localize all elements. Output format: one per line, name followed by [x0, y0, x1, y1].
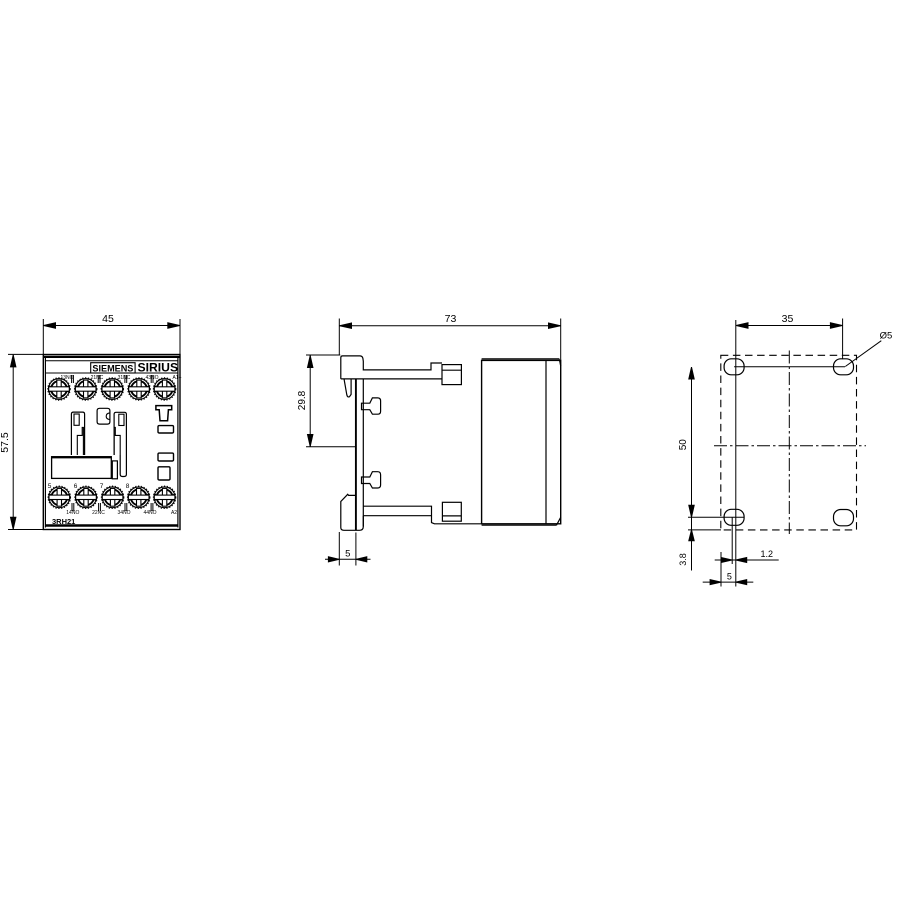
svg-text:44NO: 44NO [143, 510, 156, 516]
svg-text:1.2: 1.2 [760, 549, 773, 559]
svg-text:31NC: 31NC [118, 375, 131, 381]
svg-text:3RH21: 3RH21 [52, 517, 75, 526]
svg-text:SIRIUS: SIRIUS [138, 361, 179, 375]
svg-text:SIEMENS: SIEMENS [92, 363, 133, 373]
svg-text:43NO: 43NO [145, 375, 158, 381]
svg-text:7: 7 [100, 483, 104, 490]
svg-text:29.8: 29.8 [297, 390, 308, 410]
svg-text:34NO: 34NO [117, 510, 130, 516]
svg-text:45: 45 [102, 313, 114, 325]
svg-text:73: 73 [445, 313, 457, 325]
svg-text:8: 8 [126, 483, 130, 490]
svg-text:14NO: 14NO [66, 510, 79, 516]
svg-text:5: 5 [345, 549, 350, 560]
svg-text:A1+: A1+ [172, 375, 181, 381]
svg-text:Ø5: Ø5 [880, 331, 893, 342]
svg-text:6: 6 [74, 483, 78, 490]
svg-text:3.8: 3.8 [678, 553, 688, 566]
svg-text:35: 35 [782, 313, 794, 325]
svg-text:A2: A2 [171, 510, 177, 516]
svg-text:5: 5 [727, 571, 732, 581]
svg-text:22NC: 22NC [92, 510, 105, 516]
svg-text:50: 50 [678, 439, 689, 451]
svg-text:57.5: 57.5 [0, 432, 11, 453]
